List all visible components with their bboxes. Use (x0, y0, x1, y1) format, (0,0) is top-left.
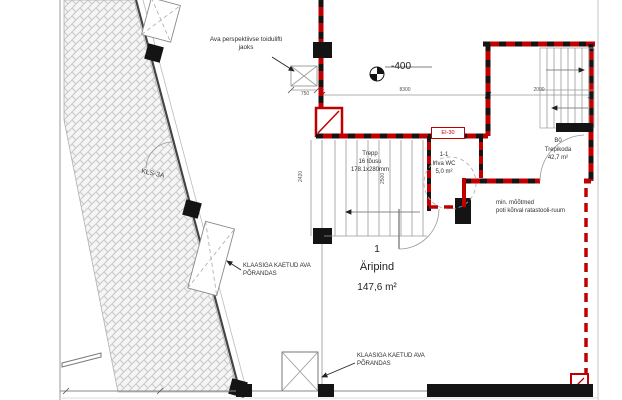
dimension-750: 750 (292, 91, 318, 97)
floor-plan-page: Ava perspektiivse toidulifti jaoks -400 … (0, 0, 622, 400)
glass-floor-opening-top (142, 0, 181, 42)
wc-room-label: 1-1 Inva WC 5,0 m² (412, 151, 476, 177)
ramp-lines (62, 353, 101, 367)
glass-mid-leader (227, 261, 241, 270)
dimension-8300: 8300 (385, 87, 425, 93)
wc-door (399, 209, 439, 249)
glass-floor-note-bottom: KLAASIGA KAETUD AVA PÕRANDAS (357, 353, 425, 368)
main-room-area: 147,6 m² (327, 282, 427, 293)
lift-shaft (316, 108, 342, 136)
wall-right-lower (571, 188, 588, 390)
stairwell-room-label: B0 Trepikoda 42,7 m² (522, 137, 594, 163)
food-lift-leader (272, 57, 294, 71)
dimension-2000: 2000 (519, 87, 559, 93)
fire-door-label: EI-30 (431, 127, 465, 139)
glass-floor-note-mid: KLAASIGA KAETUD AVA PÕRANDAS (243, 263, 311, 278)
main-room-label: 1 Äripind 147,6 m² (327, 244, 427, 293)
glass-bottom-leader (322, 363, 355, 377)
main-room-number: 1 (327, 244, 427, 255)
food-lift-note: Ava perspektiivse toidulifti jaoks (198, 36, 294, 52)
main-room-name: Äripind (327, 261, 427, 273)
dimension-2420: 2420 (298, 171, 304, 182)
glass-floor-opening-bottom (282, 352, 318, 391)
level-marker-text: -400 (391, 61, 411, 72)
food-lift-note-line1: Ava perspektiivse toidulifti (198, 36, 294, 44)
stairs-left-label: Trepp 16 tõusu 178.1x280mm (330, 150, 410, 174)
wc-dimension-note: min. mõõtmed poti kõrval ratastooli-ruum (496, 200, 565, 215)
food-lift-note-line2: jaoks (198, 44, 294, 52)
dimension-2500: 2500 (380, 173, 386, 184)
